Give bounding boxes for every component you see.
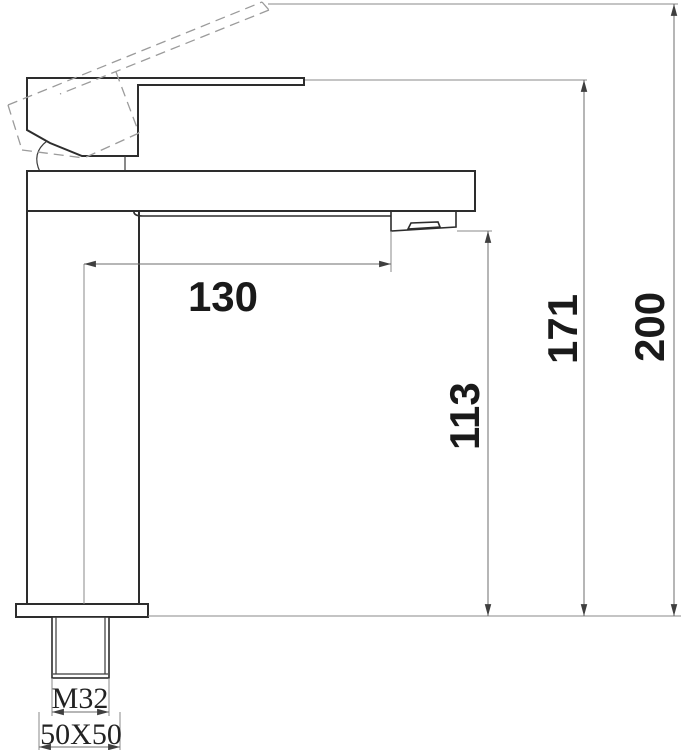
dimension-200: 200 [626, 4, 674, 616]
dim-label-50x50: 50X50 [40, 718, 122, 750]
dimension-50x50: 50X50 [39, 718, 122, 750]
raised-lever-bottom-line [60, 10, 269, 94]
raised-body-bottom-right [84, 133, 139, 158]
dimension-130: 130 [84, 264, 391, 320]
technical-drawing-canvas: 130 113 171 200 M32 50X50 [0, 0, 683, 750]
aerator [408, 222, 440, 229]
dim-label-171: 171 [539, 294, 586, 364]
dimension-113: 113 [441, 231, 488, 616]
extension-lines [39, 4, 681, 750]
dim-label-130: 130 [188, 273, 258, 320]
base-flange [16, 604, 148, 617]
handle-pivot-arc [37, 141, 47, 172]
dim-label-113: 113 [441, 382, 488, 450]
dimension-171: 171 [539, 80, 586, 616]
faucet-outline [16, 78, 475, 678]
threaded-shank [52, 617, 109, 678]
raised-lever-top-line [8, 2, 262, 105]
raised-body-left-edge [8, 105, 22, 150]
raised-body-right-edge [116, 72, 139, 133]
faucet-dimension-drawing: 130 113 171 200 M32 50X50 [0, 0, 683, 750]
spout-body [27, 171, 475, 211]
raised-lever-tip [262, 2, 269, 10]
dimension-m32: M32 [52, 682, 109, 715]
dim-label-m32: M32 [52, 682, 109, 715]
dim-label-200: 200 [626, 292, 673, 362]
handle-lever-outline [27, 78, 304, 156]
